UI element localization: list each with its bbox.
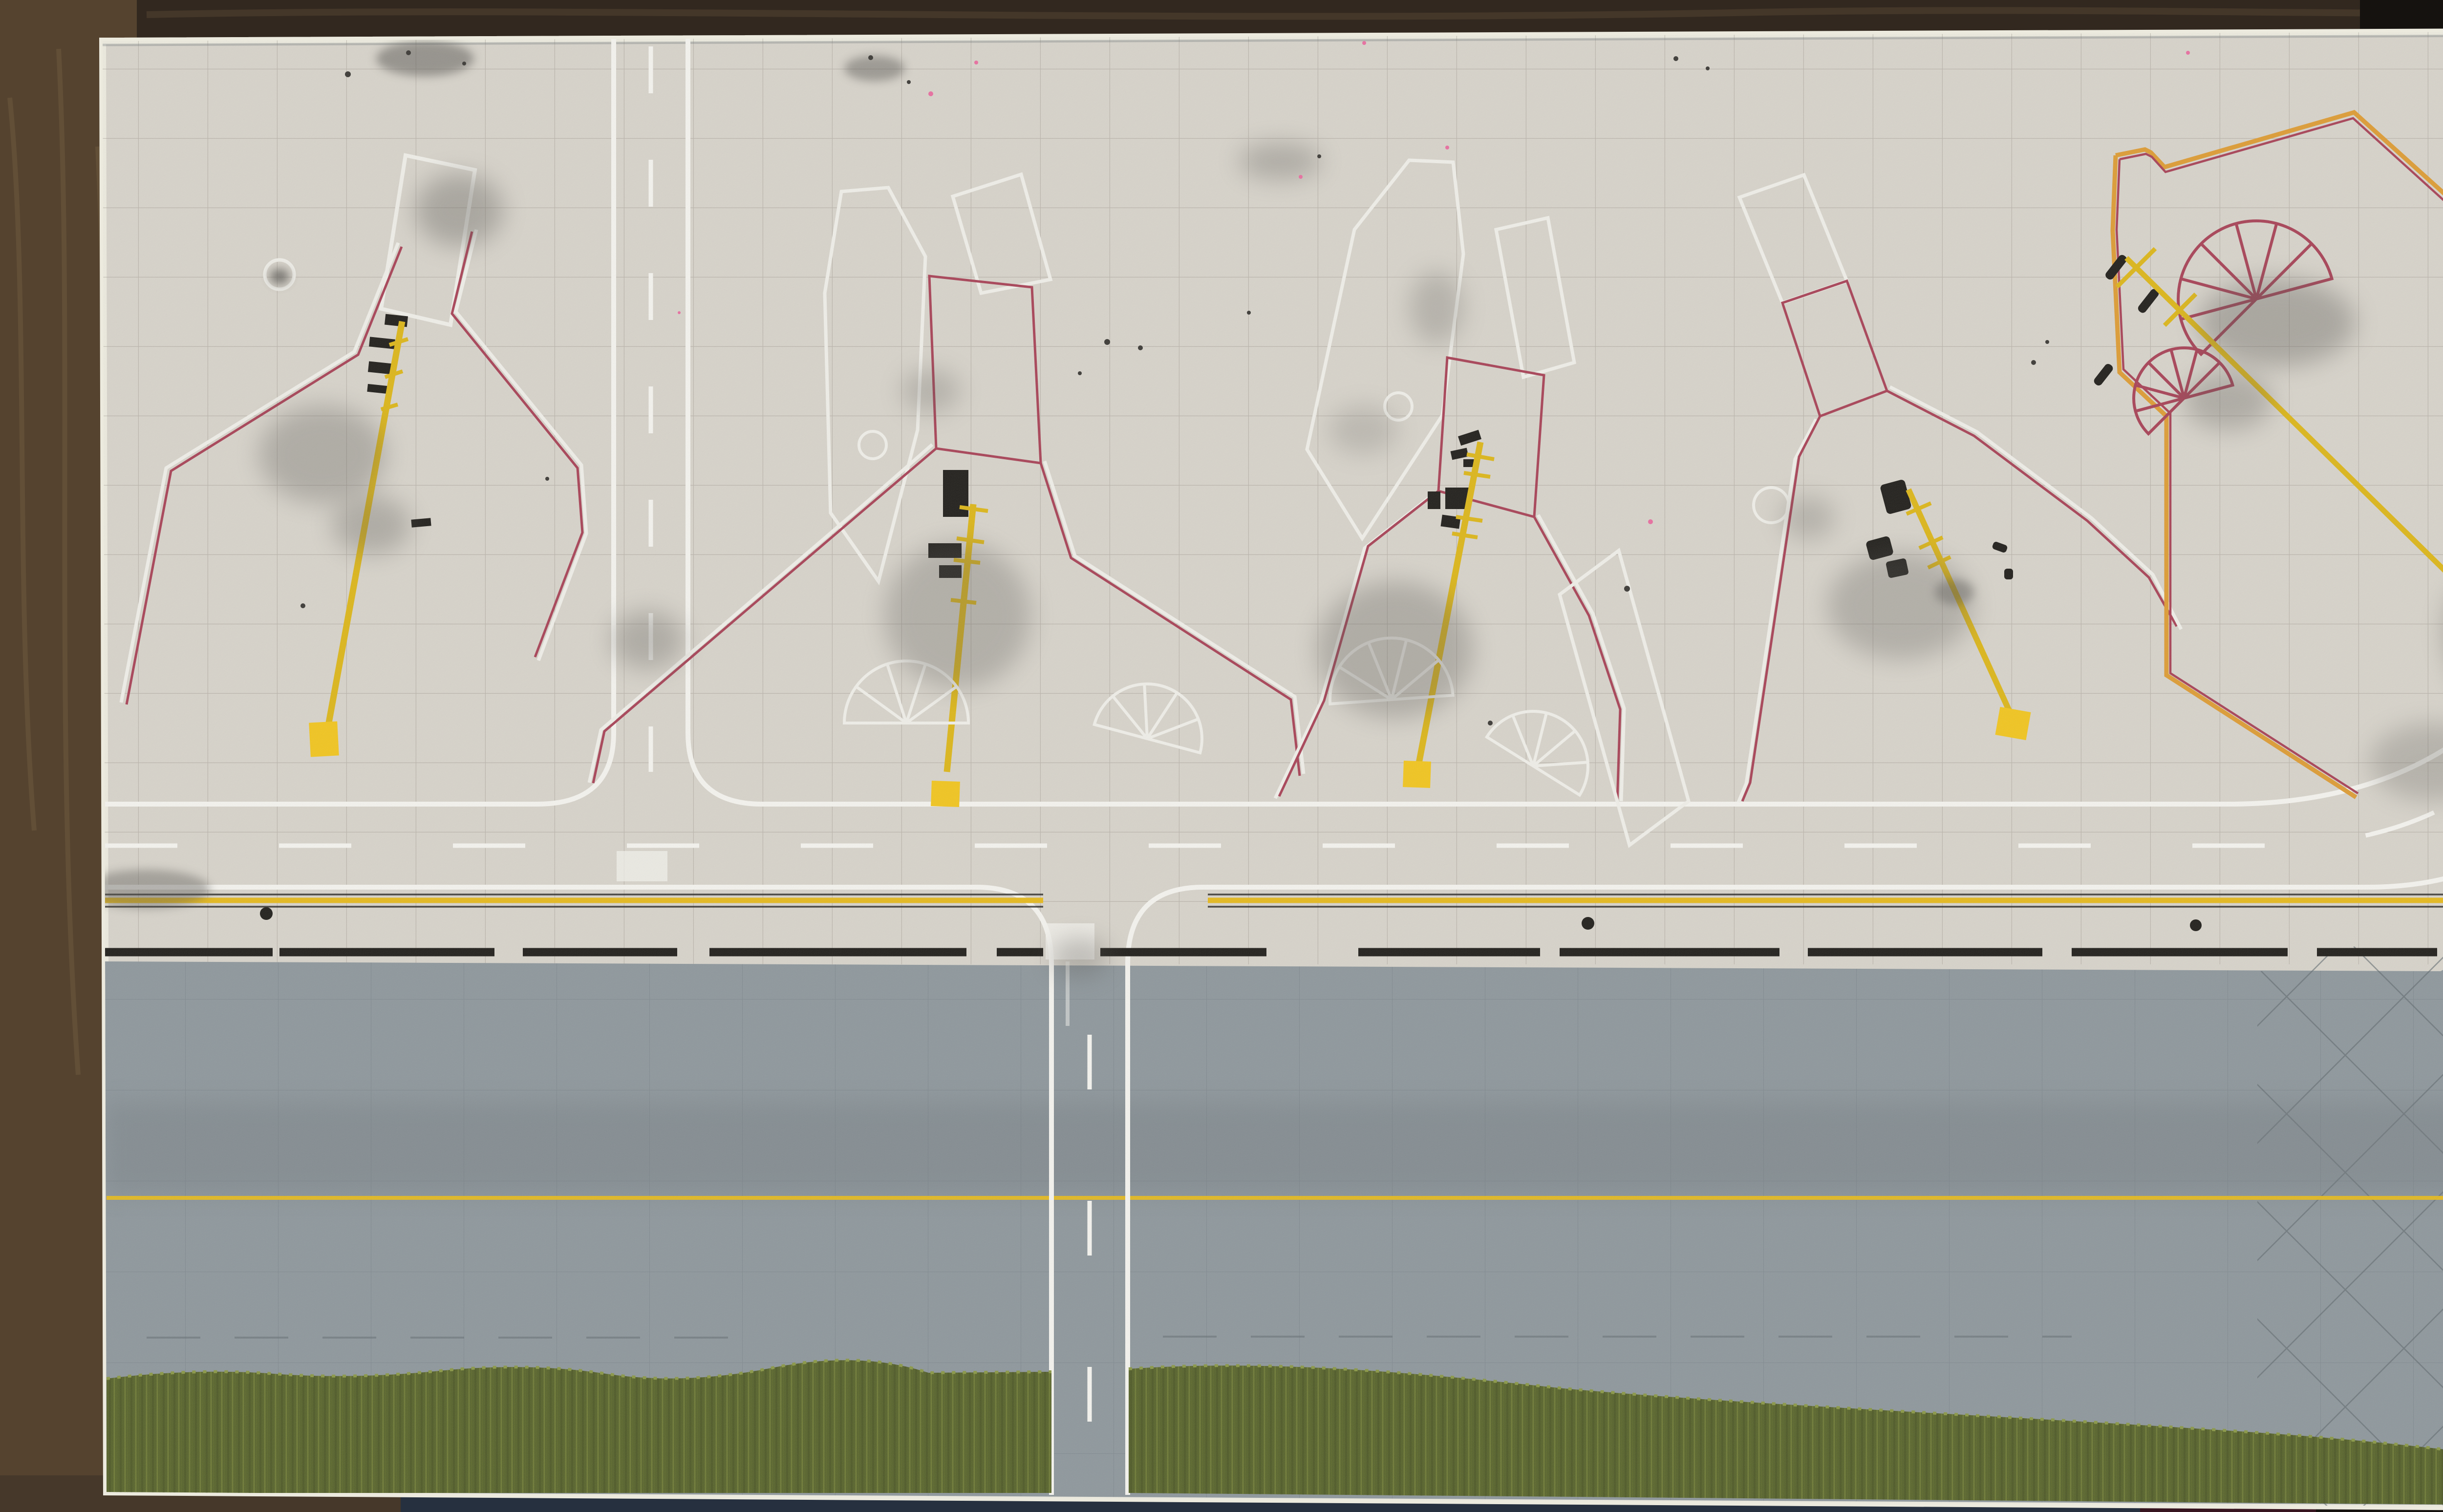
- diorama-photo: Overhead photograph of a handmade model …: [0, 0, 2443, 1512]
- board-contents: [83, 31, 2443, 1512]
- photo-of-airport-diorama: Overhead photograph of a handmade model …: [0, 0, 2443, 1512]
- paper-texture-overlay: [103, 31, 2443, 1512]
